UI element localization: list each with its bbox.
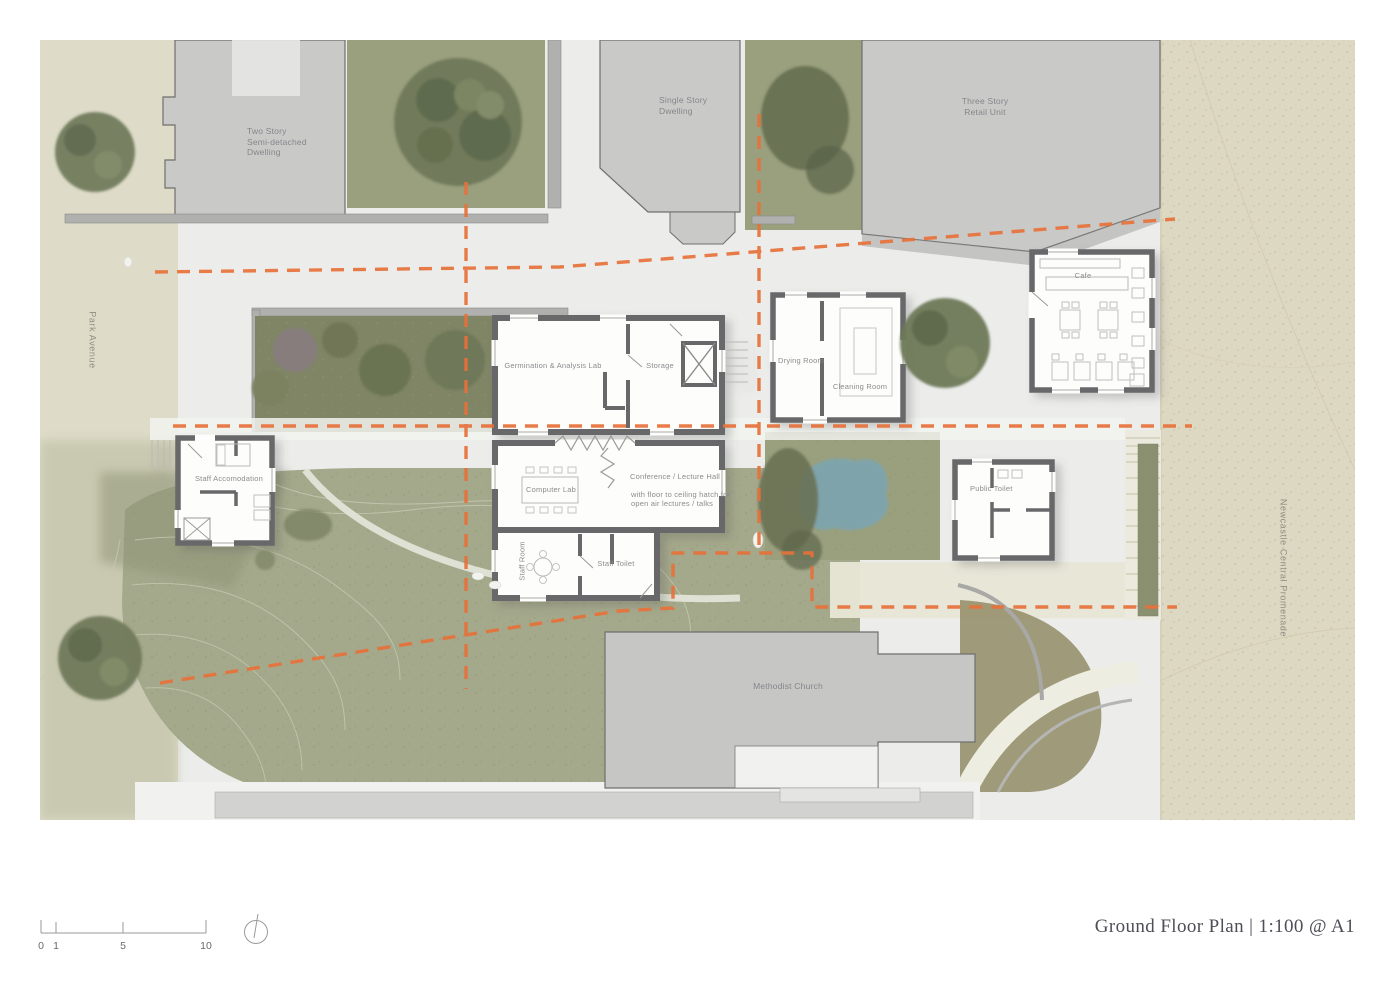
label-computer-lab: Computer Lab bbox=[526, 485, 576, 494]
tree bbox=[900, 298, 990, 388]
label-two-story-dwelling: Two Story Semi-detached Dwelling bbox=[247, 126, 307, 158]
label-promenade: Newcastle Central Promenade bbox=[1278, 499, 1289, 637]
label-park-avenue: Park Avenue bbox=[87, 311, 98, 368]
building-retail-unit bbox=[862, 40, 1160, 252]
label-cafe: Cafe bbox=[1075, 271, 1092, 280]
north-arrow-icon bbox=[234, 905, 282, 955]
building-lab bbox=[495, 318, 748, 432]
scale-tick-5: 5 bbox=[120, 940, 126, 952]
tree bbox=[58, 616, 142, 700]
label-single-story-dwelling: Single Story Dwelling bbox=[659, 95, 707, 116]
building-cafe bbox=[1032, 252, 1152, 390]
promenade-steps bbox=[1125, 430, 1161, 620]
label-germination-lab: Germination & Analysis Lab bbox=[504, 361, 601, 370]
drawing-title: Ground Floor Plan | 1:100 @ A1 bbox=[1095, 916, 1355, 938]
label-methodist-church: Methodist Church bbox=[753, 681, 823, 692]
label-cleaning-room: Cleaning Room bbox=[833, 382, 887, 391]
label-conference-note: with floor to ceiling hatch for open air… bbox=[631, 490, 730, 508]
label-conference-hall: Conference / Lecture Hall bbox=[630, 472, 720, 481]
label-storage: Storage bbox=[646, 361, 674, 370]
site-plan-canvas: Two Story Semi-detached Dwelling Single … bbox=[40, 40, 1355, 820]
label-public-toilet: Public Toilet bbox=[970, 484, 1012, 493]
tree bbox=[394, 58, 522, 186]
boundary-wall bbox=[65, 214, 548, 223]
label-drying-room: Drying Room bbox=[778, 356, 824, 365]
label-staff-toilet: Staff Toilet bbox=[597, 559, 634, 568]
scale-tick-10: 10 bbox=[200, 940, 212, 952]
tree bbox=[55, 112, 135, 192]
label-staff-room: Staff Room bbox=[518, 541, 527, 580]
scale-tick-0: 0 bbox=[38, 940, 44, 952]
label-staff-accommodation: Staff Accomodation bbox=[195, 474, 263, 483]
scale-tick-1: 1 bbox=[53, 940, 59, 952]
building-single-story-dwelling bbox=[600, 40, 740, 212]
hedge-strip bbox=[1138, 444, 1158, 616]
site-plan-drawing bbox=[40, 40, 1355, 820]
building-public-toilet bbox=[955, 462, 1052, 558]
label-retail-unit: Three Story Retail Unit bbox=[962, 96, 1009, 117]
